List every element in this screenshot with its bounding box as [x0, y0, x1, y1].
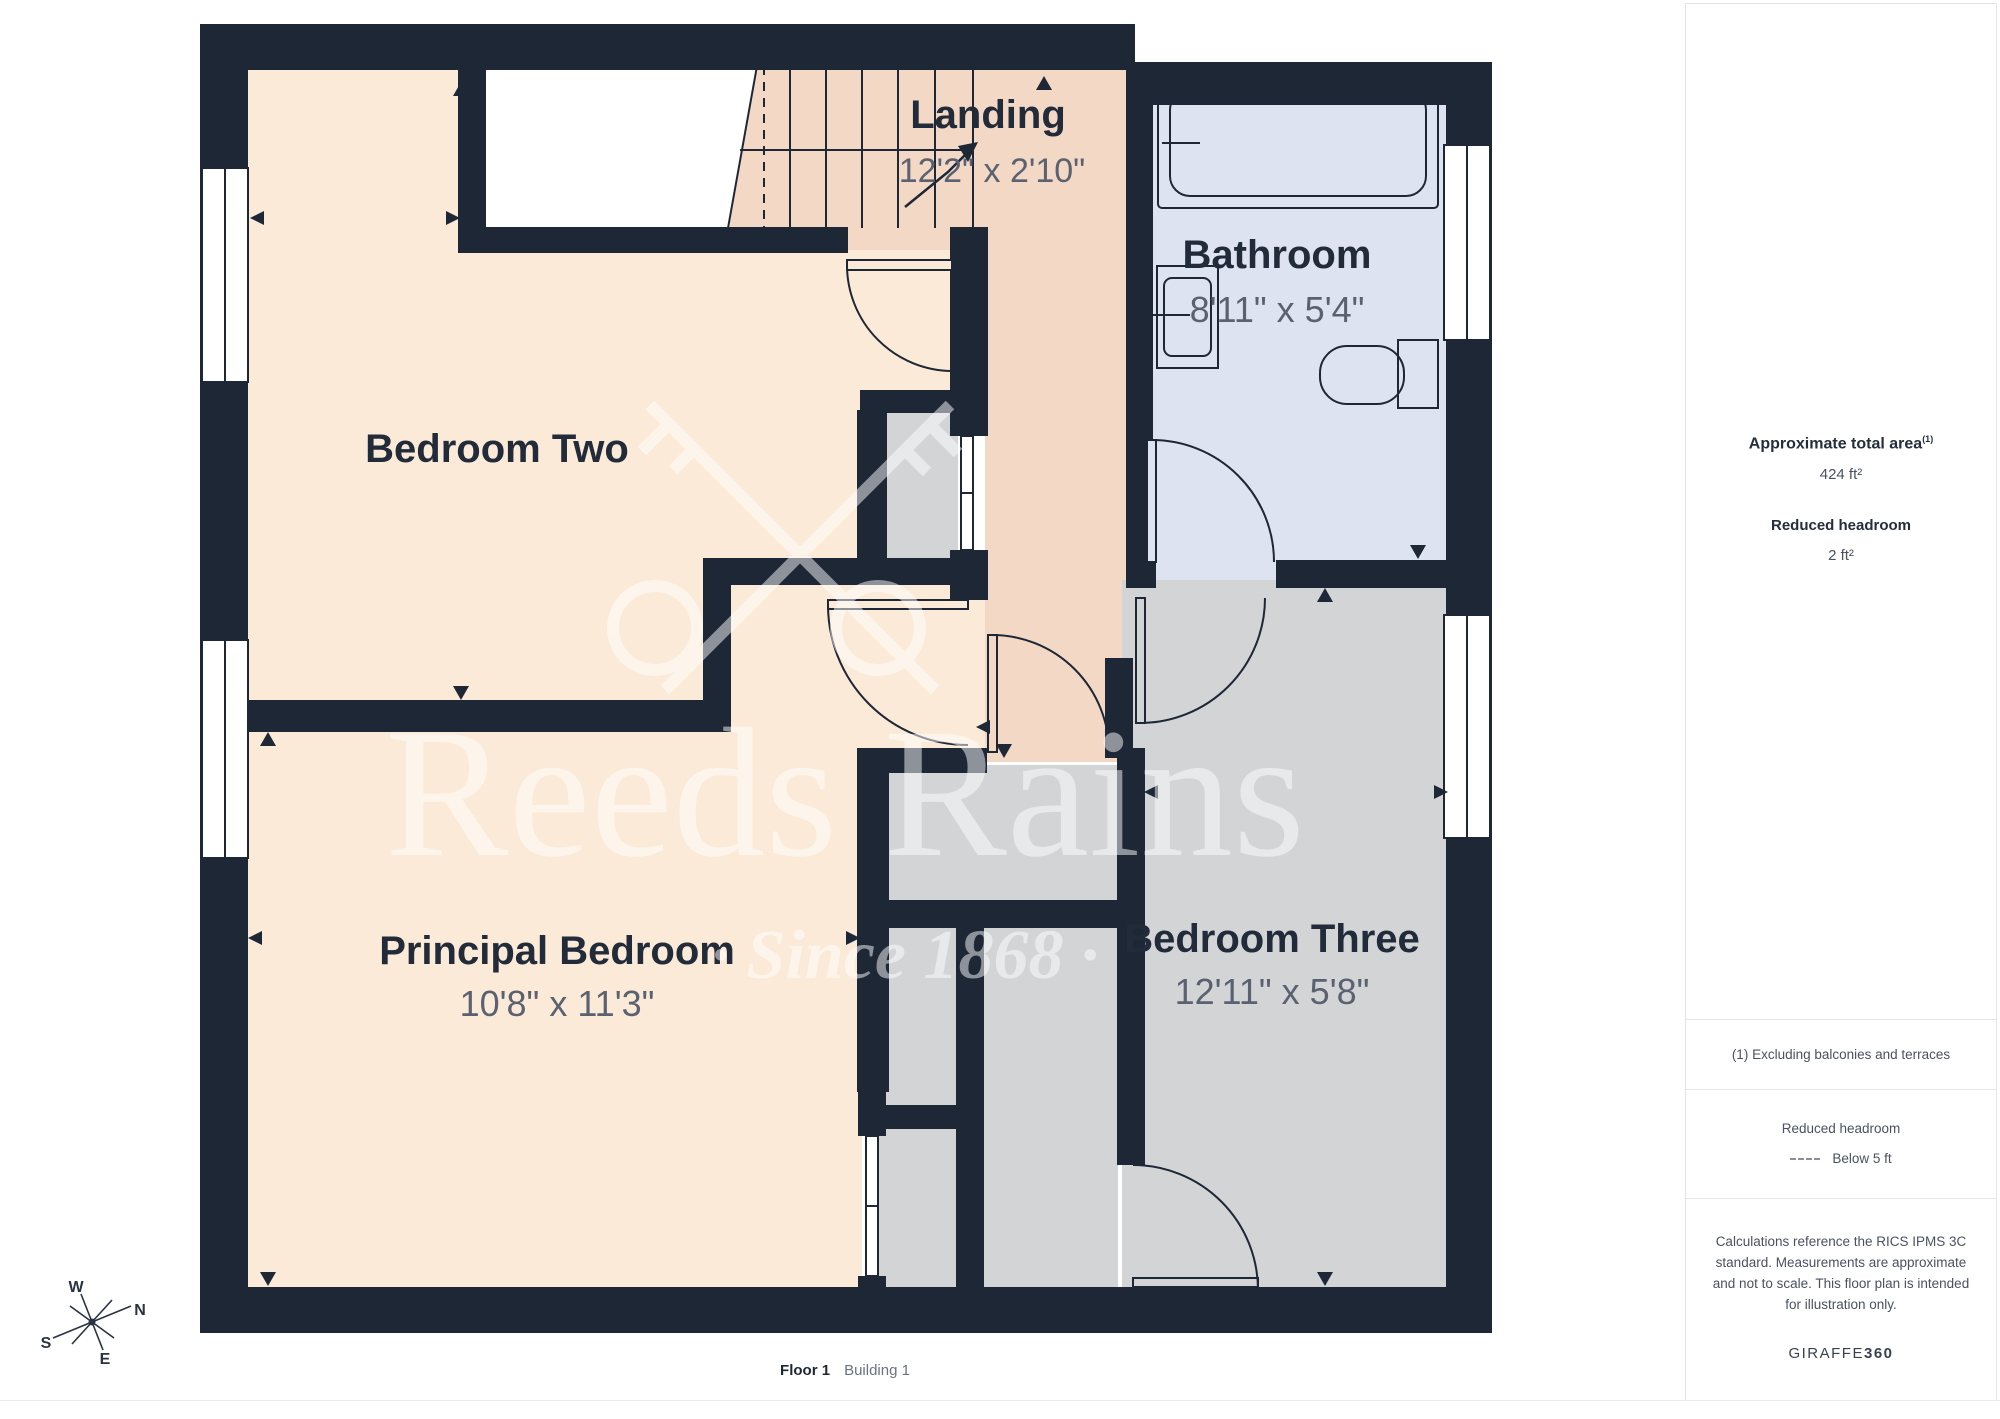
principal-bedroom-dims: 10'8" x 11'3"	[460, 983, 655, 1024]
disclaimer-text: Calculations reference the RICS IPMS 3C …	[1712, 1232, 1970, 1316]
window-bathroom	[1444, 145, 1490, 340]
building-label: Building 1	[844, 1362, 910, 1379]
reduced-headroom-value: 2 ft²	[1686, 547, 1996, 564]
total-area-superscript: (1)	[1922, 434, 1933, 444]
sliding-door-principal-closet	[866, 1136, 878, 1276]
giraffe360-logo: GIRAFFE360	[1788, 1342, 1893, 1365]
footnote-cell: (1) Excluding balconies and terraces	[1686, 1019, 1996, 1089]
window-bedroom-three	[1444, 615, 1490, 838]
bedroom-three-label: Bedroom Three	[1124, 917, 1420, 961]
bathroom-dims: 8'11" x 5'4"	[1190, 289, 1365, 330]
compass-south: S	[41, 1335, 52, 1352]
compass-north: N	[134, 1302, 146, 1319]
info-sidebar: Approximate total area(1) 424 ft² Reduce…	[1685, 3, 1997, 1401]
compass-center-dot	[89, 1319, 96, 1326]
compass-east: E	[100, 1351, 111, 1368]
bathroom-label: Bathroom	[1183, 233, 1372, 277]
total-area-label-text: Approximate total area	[1749, 435, 1922, 452]
legend-value: Below 5 ft	[1832, 1151, 1891, 1166]
reduced-headroom-label: Reduced headroom	[1686, 517, 1996, 534]
giraffe-logo-text: GIRAFFE	[1788, 1345, 1864, 1362]
legend-row: Below 5 ft	[1790, 1151, 1891, 1166]
area-summary: Approximate total area(1) 424 ft² Reduce…	[1686, 434, 1996, 564]
window-bedroom-two	[202, 168, 248, 382]
footer-divider	[0, 1400, 2000, 1401]
compass-west: W	[68, 1279, 84, 1296]
total-area-label: Approximate total area(1)	[1686, 434, 1996, 453]
dashed-line-icon	[1790, 1158, 1820, 1160]
footnote-text: (1) Excluding balconies and terraces	[1732, 1047, 1950, 1062]
window-principal-bedroom	[202, 640, 248, 858]
sliding-door-landing-closet	[961, 436, 973, 550]
legend-cell: Reduced headroom Below 5 ft	[1686, 1089, 1996, 1198]
bedroom-two-label: Bedroom Two	[365, 427, 629, 471]
compass-rose: W N S E	[41, 1279, 146, 1368]
total-area-value: 424 ft²	[1686, 466, 1996, 483]
stairwell-void	[484, 66, 757, 228]
legend-title: Reduced headroom	[1782, 1121, 1901, 1136]
landing-dims: 12'2" x 2'10"	[899, 152, 1085, 190]
watermark-tagline: · Since 1868 ·	[712, 917, 1099, 994]
disclaimer-cell: Calculations reference the RICS IPMS 3C …	[1686, 1198, 1996, 1404]
plan-caption: Floor 1 Building 1	[660, 1362, 1030, 1379]
landing-label: Landing	[910, 93, 1066, 137]
principal-bedroom-label: Principal Bedroom	[379, 929, 735, 973]
giraffe-logo-number: 360	[1864, 1345, 1894, 1362]
watermark-brand: Reeds Rains	[385, 691, 1305, 896]
bedroom-three-dims: 12'11" x 5'8"	[1175, 971, 1370, 1012]
floor-label: Floor 1	[780, 1362, 830, 1379]
